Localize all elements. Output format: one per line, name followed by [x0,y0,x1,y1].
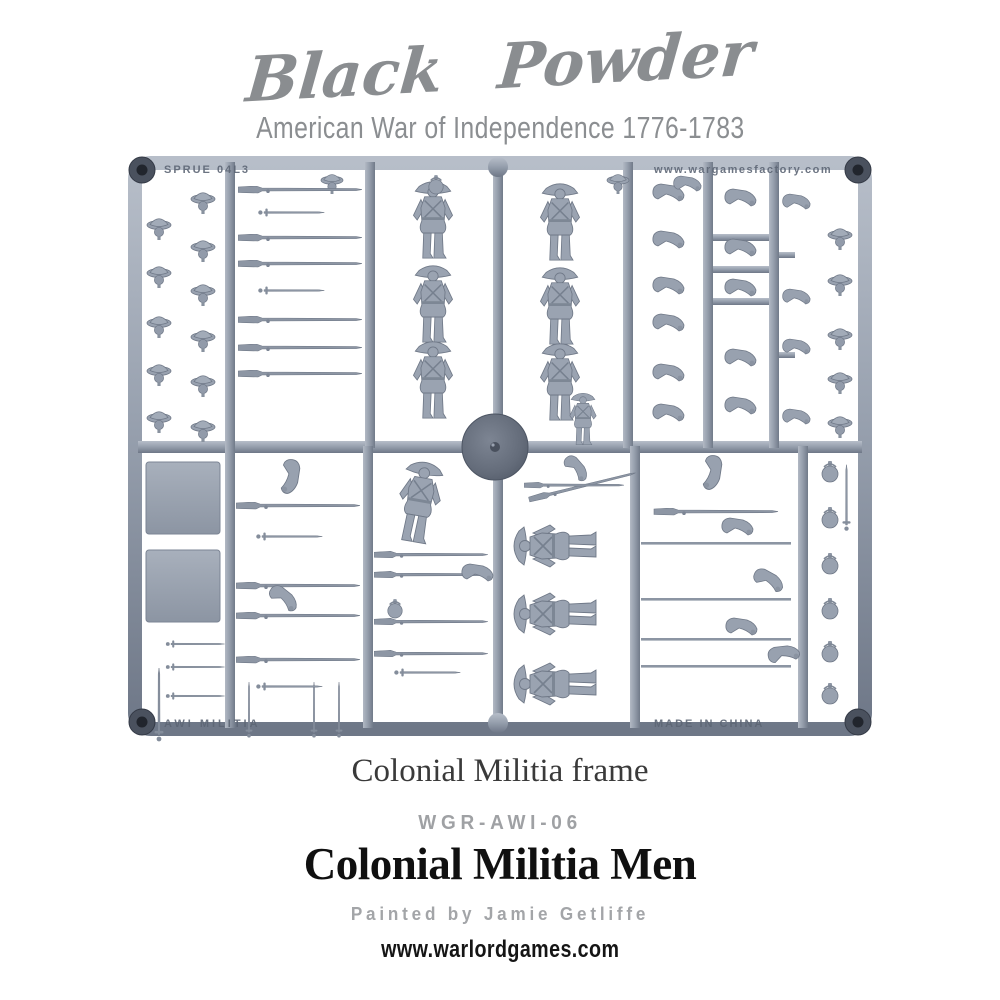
website-url-text: www.warlordgames.com [381,936,619,964]
musket-parts [238,186,362,377]
embossed-top-left: SPRUE 04L3 [164,164,250,176]
painter-credit-text: Painted by Jamie Getliffe [351,904,649,925]
embossed-bottom-right: MADE IN CHINA [654,718,764,730]
black-powder-logo: Black Powder [0,24,1000,108]
product-code-text: WGR-AWI-06 [418,812,582,835]
musket-parts-bottom [236,470,791,691]
range-subtitle: American War of Independence 1776-1783 [0,108,1000,148]
subtitle-text: American War of Independence 1776-1783 [256,110,745,146]
product-title-text: Colonial Militia Men [304,838,696,890]
sprue-photo: SPRUE 04L3 www.wargamesfactory.com AWI M… [124,150,878,744]
painter-credit: Painted by Jamie Getliffe [0,902,1000,926]
product-code: WGR-AWI-06 [0,810,1000,836]
embossed-top-right: www.wargamesfactory.com [653,164,832,176]
canteen-part [429,175,443,194]
drum-disc-part [462,414,528,480]
website-url: www.warlordgames.com [0,935,1000,965]
square-base-parts [146,462,220,622]
logo-text: Black Powder [243,16,756,116]
product-title: Colonial Militia Men [0,836,1000,892]
embossed-bottom-left: AWI MILITIA [164,718,261,730]
frame-caption: Colonial Militia frame [0,750,1000,792]
product-photo-page: Black Powder American War of Independenc… [0,0,1000,1000]
frame-caption-text: Colonial Militia frame [352,753,649,790]
sprue-svg: SPRUE 04L3 www.wargamesfactory.com AWI M… [124,150,878,744]
